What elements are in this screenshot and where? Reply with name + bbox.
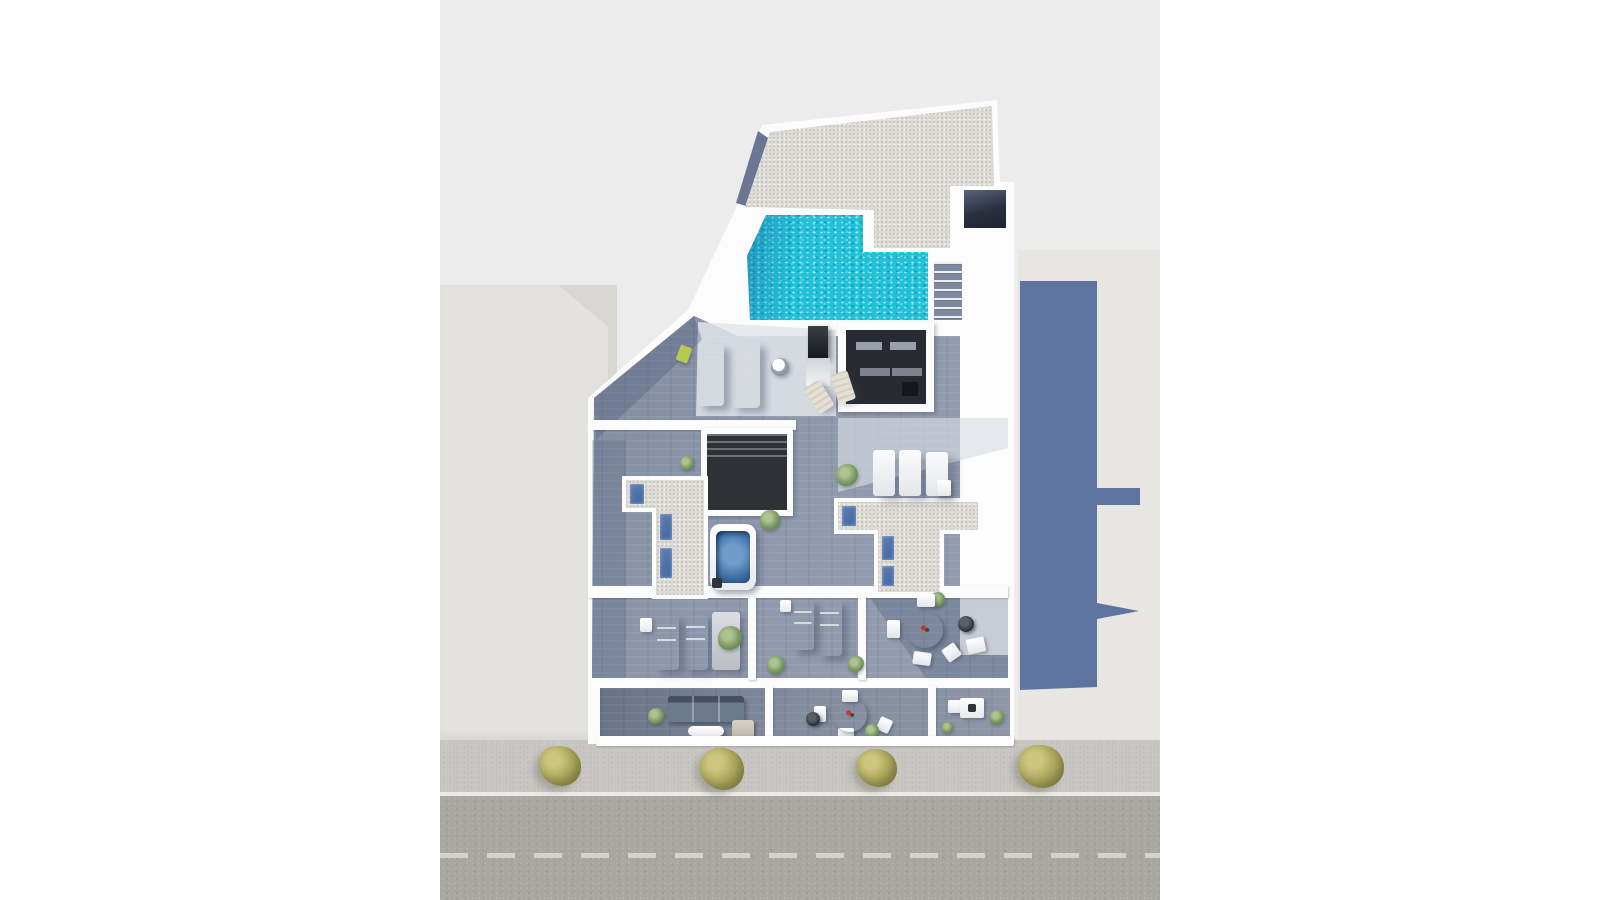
glass-skylight-strip xyxy=(660,548,672,578)
pool-lounger xyxy=(698,344,724,406)
dining-chair xyxy=(887,620,900,638)
towel-cabinet xyxy=(808,326,828,358)
render-stage xyxy=(0,0,1600,900)
terrace-lounger xyxy=(655,616,679,670)
glass-skylight-strip xyxy=(882,536,894,560)
glass-skylight-strip xyxy=(660,514,672,540)
terrace-lounger xyxy=(792,600,814,650)
balcony-divider-wall xyxy=(765,686,773,738)
side-table xyxy=(640,618,652,632)
sunbed xyxy=(899,450,921,496)
balcony-sofa xyxy=(668,696,744,722)
street-tree xyxy=(857,749,897,787)
stair-bulkhead-door xyxy=(964,190,1006,228)
lane-marking xyxy=(440,853,1160,858)
side-table-dark xyxy=(958,616,974,632)
glass-skylight-strip xyxy=(630,484,644,504)
dining-chair xyxy=(912,651,932,666)
balcony-side-table xyxy=(806,712,820,726)
terrace-lounger xyxy=(818,600,842,656)
room-divider-wall xyxy=(748,596,756,680)
wood-walkway xyxy=(962,188,1008,655)
balcony-divider-wall xyxy=(928,686,936,738)
glass-skylight-strip xyxy=(882,566,894,586)
skylight-blinds xyxy=(707,434,787,458)
terrace-wall xyxy=(588,586,1008,598)
street-tree xyxy=(1018,745,1064,788)
hot-tub-water xyxy=(716,531,750,583)
side-table xyxy=(937,480,951,496)
dining-chair xyxy=(917,594,935,607)
balcony-dining-table xyxy=(833,698,867,732)
staircase-with-railing xyxy=(934,262,962,320)
dining-table xyxy=(907,612,943,648)
side-table xyxy=(780,600,791,612)
terrace-lounger xyxy=(684,614,708,670)
balcony-railing xyxy=(596,736,1014,746)
street-asphalt xyxy=(440,796,1160,900)
street-tree xyxy=(700,748,744,790)
street-tree xyxy=(539,746,581,786)
towel-pouf xyxy=(771,358,789,376)
sunbed xyxy=(873,450,895,496)
glass-skylight-strip xyxy=(842,506,856,526)
desk-item xyxy=(968,704,976,712)
atrium-void-interior xyxy=(846,330,926,404)
hot-tub-cover-item xyxy=(712,578,722,588)
aerial-render xyxy=(440,0,1160,900)
coffee-table xyxy=(688,726,724,736)
pool-lounger xyxy=(732,342,760,408)
